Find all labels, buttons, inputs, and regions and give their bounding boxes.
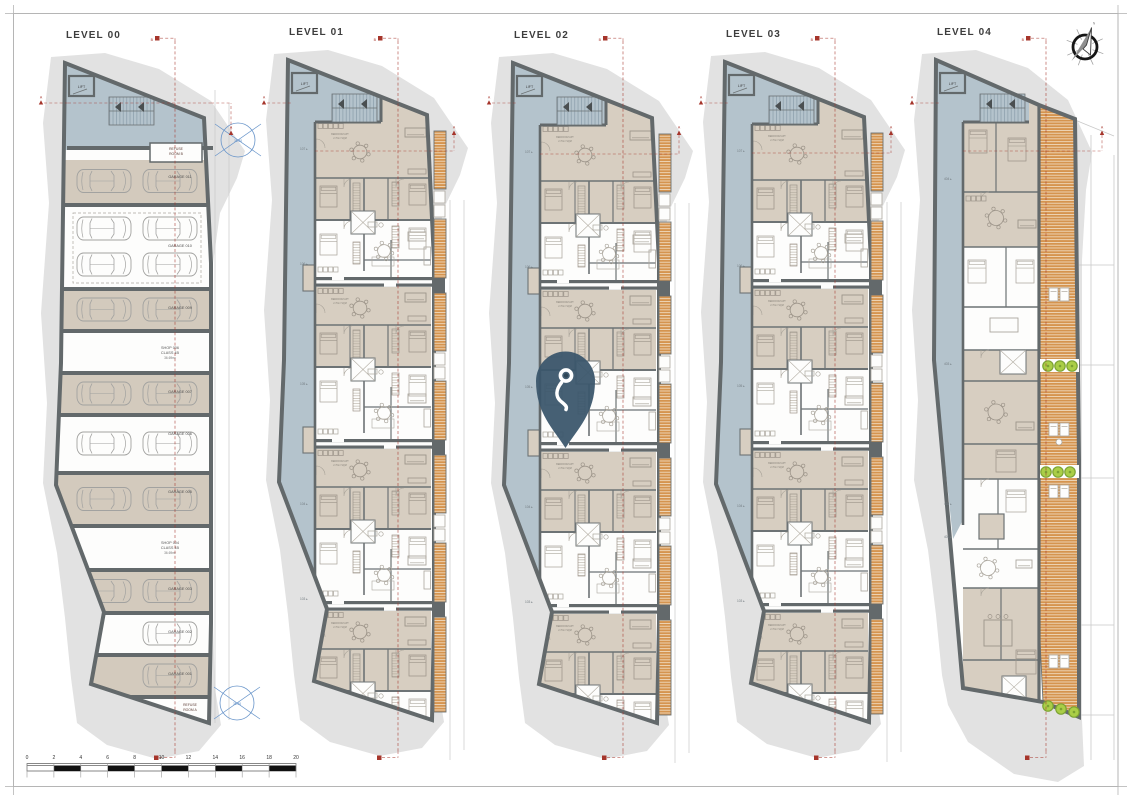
- svg-text:GARAGE 006: GARAGE 006: [168, 432, 192, 436]
- svg-text:GARAGE 011: GARAGE 011: [168, 175, 191, 179]
- svg-text:36.69m²: 36.69m²: [164, 356, 176, 360]
- svg-text:GARAGE 005: GARAGE 005: [168, 490, 192, 494]
- svg-text:BEDROOM APT: BEDROOM APT: [331, 133, 349, 136]
- svg-text:CLASS 4B: CLASS 4B: [161, 351, 180, 355]
- svg-text:103 ▸: 103 ▸: [737, 599, 745, 603]
- svg-text:GARAGE 009: GARAGE 009: [168, 306, 192, 310]
- svg-text:0: 0: [26, 755, 29, 761]
- svg-text:104 ▸: 104 ▸: [737, 504, 745, 508]
- svg-text:SHOP 006: SHOP 006: [161, 346, 179, 350]
- svg-text:403 ▸: 403 ▸: [944, 362, 952, 366]
- svg-text:105 ▸: 105 ▸: [525, 385, 533, 389]
- svg-text:LIFT: LIFT: [301, 82, 309, 86]
- svg-text:103 ▸: 103 ▸: [300, 597, 308, 601]
- svg-text:2.70m² SQM: 2.70m² SQM: [770, 466, 784, 469]
- svg-text:104 ▸: 104 ▸: [525, 505, 533, 509]
- svg-text:4: 4: [79, 755, 82, 761]
- svg-text:107 ▸: 107 ▸: [525, 150, 533, 154]
- svg-text:2.70m² SQM: 2.70m² SQM: [558, 140, 572, 143]
- svg-text:401 ▸: 401 ▸: [944, 535, 952, 539]
- svg-text:105 ▸: 105 ▸: [300, 382, 308, 386]
- svg-text:2.70m² SQM: 2.70m² SQM: [770, 304, 784, 307]
- svg-text:2: 2: [53, 755, 56, 761]
- svg-text:BEDROOM APT: BEDROOM APT: [331, 622, 349, 625]
- svg-text:BEDROOM APT: BEDROOM APT: [556, 301, 574, 304]
- svg-text:107 ▸: 107 ▸: [300, 147, 308, 151]
- svg-text:2.70m² SQM: 2.70m² SQM: [333, 302, 347, 305]
- svg-text:LEVEL 02: LEVEL 02: [514, 30, 569, 41]
- svg-text:LIFT: LIFT: [949, 82, 957, 86]
- svg-text:18: 18: [266, 755, 272, 761]
- svg-text:20: 20: [293, 755, 299, 761]
- svg-text:36.69m²: 36.69m²: [164, 551, 176, 555]
- svg-text:BEDROOM APT: BEDROOM APT: [556, 136, 574, 139]
- svg-text:LIFT: LIFT: [738, 84, 746, 88]
- svg-text:LIFT: LIFT: [526, 85, 534, 89]
- svg-text:2.70m² SQM: 2.70m² SQM: [770, 628, 784, 631]
- svg-text:104 ▸: 104 ▸: [300, 502, 308, 506]
- svg-text:ROOM A: ROOM A: [183, 708, 197, 712]
- svg-text:LEVEL 04: LEVEL 04: [937, 27, 992, 38]
- svg-text:2.70m² SQM: 2.70m² SQM: [558, 305, 572, 308]
- svg-text:GARAGE 007: GARAGE 007: [168, 390, 192, 394]
- svg-text:106 ▸: 106 ▸: [737, 264, 745, 268]
- svg-text:10: 10: [159, 755, 165, 761]
- svg-text:107 ▸: 107 ▸: [737, 149, 745, 153]
- svg-text:12: 12: [186, 755, 192, 761]
- svg-text:BEDROOM APT: BEDROOM APT: [331, 460, 349, 463]
- svg-text:404 ▸: 404 ▸: [944, 177, 952, 181]
- svg-text:LIFT: LIFT: [78, 85, 86, 89]
- svg-text:106 ▸: 106 ▸: [525, 265, 533, 269]
- svg-text:2.70m² SQM: 2.70m² SQM: [333, 137, 347, 140]
- svg-text:106 ▸: 106 ▸: [300, 262, 308, 266]
- svg-text:REFUSE: REFUSE: [169, 147, 183, 151]
- svg-text:2.70m² SQM: 2.70m² SQM: [333, 464, 347, 467]
- svg-text:36.58: 36.58: [234, 139, 242, 143]
- svg-text:SHOP 004: SHOP 004: [161, 541, 179, 545]
- svg-text:402 ▸: 402 ▸: [944, 502, 952, 506]
- svg-text:ROOM B: ROOM B: [169, 152, 183, 156]
- svg-text:LEVEL 01: LEVEL 01: [289, 27, 344, 38]
- svg-text:GARAGE 001: GARAGE 001: [168, 672, 192, 676]
- svg-text:GARAGE 010: GARAGE 010: [168, 244, 192, 248]
- svg-text:CLASS 4B: CLASS 4B: [161, 546, 180, 550]
- svg-text:BEDROOM APT: BEDROOM APT: [556, 463, 574, 466]
- svg-text:BEDROOM APT: BEDROOM APT: [768, 462, 786, 465]
- svg-text:103 ▸: 103 ▸: [525, 600, 533, 604]
- svg-text:2.70m² SQM: 2.70m² SQM: [558, 467, 572, 470]
- svg-text:14: 14: [213, 755, 219, 761]
- svg-text:BEDROOM APT: BEDROOM APT: [768, 624, 786, 627]
- svg-text:GARAGE 002: GARAGE 002: [168, 630, 192, 634]
- svg-text:16: 16: [239, 755, 245, 761]
- svg-text:2.70m² SQM: 2.70m² SQM: [558, 629, 572, 632]
- svg-text:BEDROOM APT: BEDROOM APT: [768, 300, 786, 303]
- svg-text:LEVEL 00: LEVEL 00: [66, 30, 121, 41]
- svg-text:BEDROOM APT: BEDROOM APT: [768, 135, 786, 138]
- svg-text:REFUSE: REFUSE: [183, 703, 197, 707]
- svg-text:2.70m² SQM: 2.70m² SQM: [333, 626, 347, 629]
- svg-text:LEVEL 03: LEVEL 03: [726, 29, 781, 40]
- svg-text:2.70m² SQM: 2.70m² SQM: [770, 139, 784, 142]
- svg-text:BEDROOM APT: BEDROOM APT: [331, 298, 349, 301]
- svg-text:8: 8: [133, 755, 136, 761]
- svg-text:GARAGE 003: GARAGE 003: [168, 587, 192, 591]
- svg-text:BEDROOM APT: BEDROOM APT: [556, 625, 574, 628]
- svg-text:36.58: 36.58: [233, 702, 241, 706]
- svg-text:6: 6: [106, 755, 109, 761]
- svg-text:105 ▸: 105 ▸: [737, 384, 745, 388]
